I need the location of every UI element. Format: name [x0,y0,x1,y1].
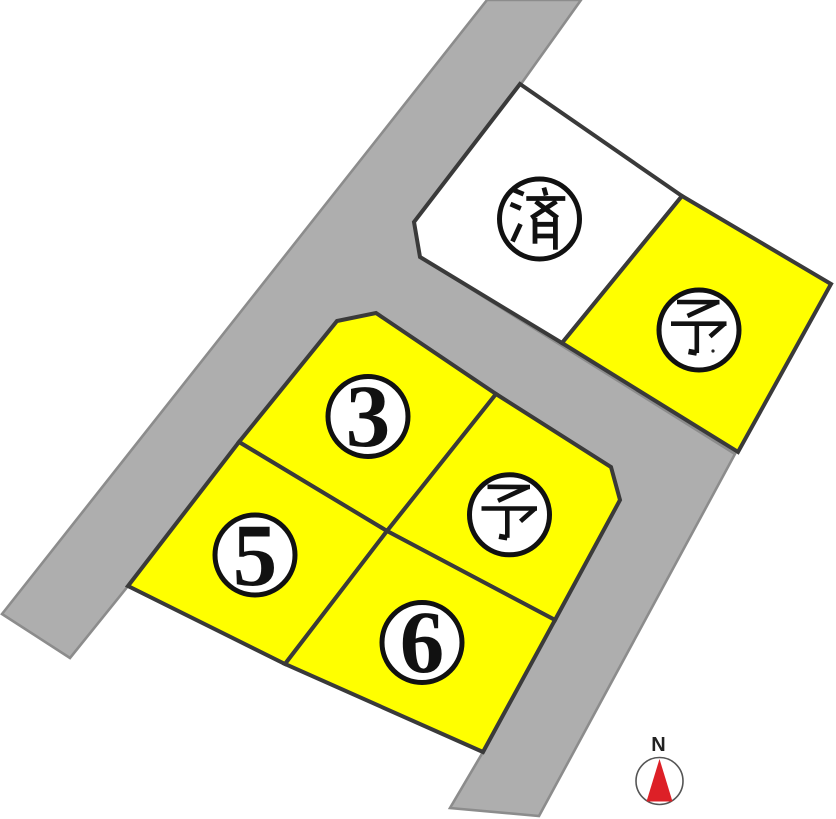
svg-text:6: 6 [400,594,445,692]
svg-text:N: N [651,734,665,756]
svg-text:5: 5 [233,507,278,605]
svg-text:3: 3 [346,368,391,466]
